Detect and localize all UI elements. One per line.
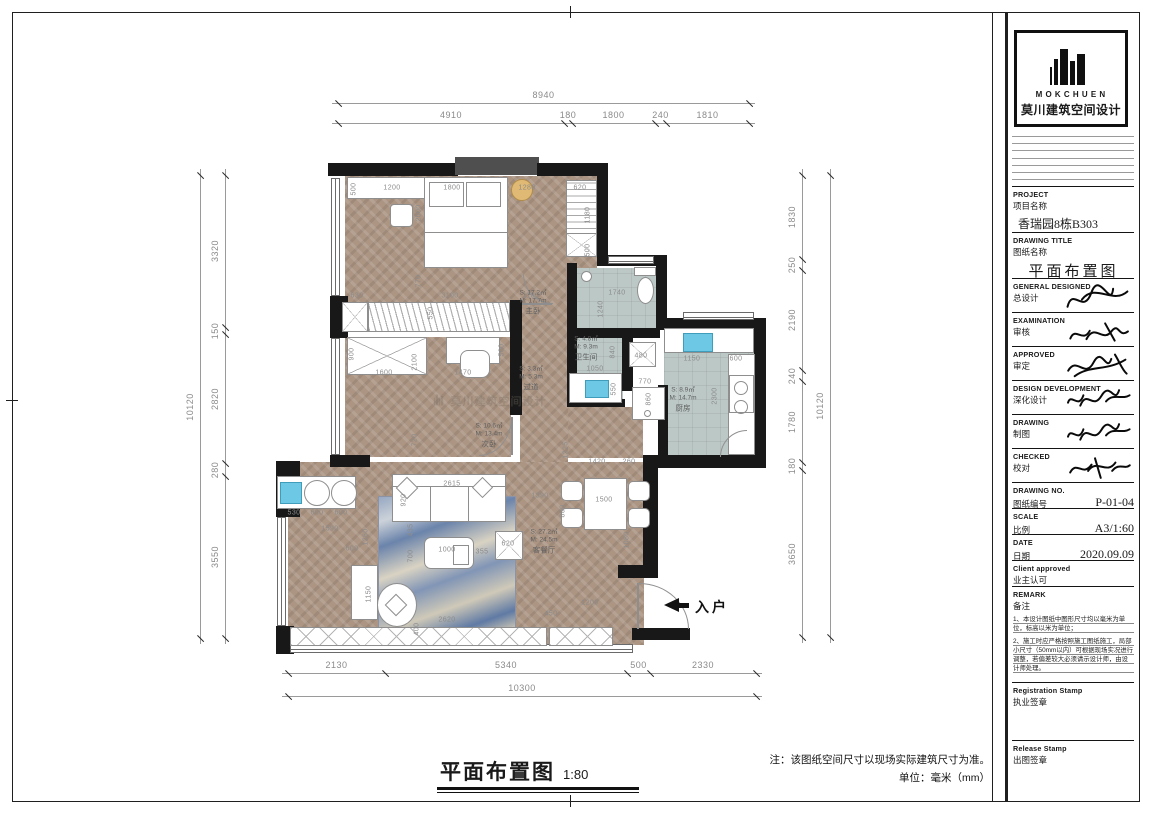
interior-dim-label: 720 xyxy=(412,434,419,447)
dim-label: 1830 xyxy=(787,206,797,228)
interior-dim-label: 620 xyxy=(574,185,587,192)
dim-line-right_segs xyxy=(802,169,803,643)
interior-dim-label: 630 xyxy=(351,293,364,300)
tb-label-en: DRAWING NO. xyxy=(1013,486,1134,495)
tb-section-release-stamp: Release Stamp出图签章 xyxy=(1012,740,1134,790)
interior-dim-label: 1150 xyxy=(366,586,373,603)
drawing-sheet: 8940491018018002401810213053405002330103… xyxy=(0,0,1150,813)
shower-head xyxy=(581,271,592,282)
interior-dim-label: 600 xyxy=(311,510,324,517)
interior-dim-label: 1050 xyxy=(586,366,603,373)
logo-decorative-lines xyxy=(1012,136,1134,180)
dim-line-left_segs xyxy=(225,169,226,644)
interior-dim-label: 1200 xyxy=(383,185,400,192)
interior-dim-label: 450 xyxy=(545,611,558,618)
tb-label-en: REMARK xyxy=(1013,590,1134,599)
dim-label: 180 xyxy=(560,110,577,120)
remark-note: 1、本设计图纸中图形尺寸均以毫米为单位，标高以米为单位； xyxy=(1013,615,1134,634)
tb-section-remark: REMARK备注1、本设计图纸中图形尺寸均以毫米为单位，标高以米为单位；2、施工… xyxy=(1012,586,1134,682)
tb-label-en: SCALE xyxy=(1013,512,1134,521)
dim-label: 8940 xyxy=(532,90,554,100)
dim-label: 1780 xyxy=(787,410,797,432)
wall xyxy=(328,163,458,176)
dim-line-top_segs xyxy=(332,123,755,124)
washing-machine xyxy=(304,480,330,506)
window-mullion xyxy=(291,649,632,650)
dim-label: 5340 xyxy=(495,660,517,670)
interior-dim-label: 550 xyxy=(611,383,618,396)
water-heater-knob xyxy=(644,410,651,417)
interior-dim-label: 600 xyxy=(346,546,359,553)
interior-dim-label: 860 xyxy=(646,393,653,406)
dim-label: 3320 xyxy=(210,240,220,262)
tb-section-examination: EXAMINATION审核 xyxy=(1012,312,1134,346)
interior-dim-label: 1200 xyxy=(581,600,598,607)
dim-line-left_total xyxy=(200,169,201,644)
interior-dim-label: 3100 xyxy=(441,293,458,300)
dim-label: 3650 xyxy=(787,542,797,564)
interior-dim-label: 1600 xyxy=(375,370,392,377)
burner xyxy=(734,381,748,395)
wall xyxy=(597,168,608,265)
sheet-note-line1: 注：该图纸空间尺寸以现场实际建筑尺寸为准。 xyxy=(640,752,990,770)
dim-label: 2130 xyxy=(325,660,347,670)
dim-label: 250 xyxy=(787,256,797,273)
interior-dim-label: 770 xyxy=(416,275,423,288)
logo-name-en: MOKCHUEN xyxy=(1036,90,1109,99)
dim-label: 240 xyxy=(652,110,669,120)
dining-chair xyxy=(561,481,583,501)
tb-label-en: PROJECT xyxy=(1013,190,1134,199)
interior-dim-label: 1000 xyxy=(438,547,455,554)
interior-dim-label: 435 xyxy=(408,524,415,537)
interior-dim-label: 1470 xyxy=(454,370,471,377)
dim-label: 2190 xyxy=(787,309,797,331)
panel-divider-thick xyxy=(1005,12,1008,801)
interior-dim-label: 2620 xyxy=(438,617,455,624)
title-underline-thin xyxy=(437,792,639,793)
desk-living xyxy=(351,565,378,620)
wall xyxy=(330,455,370,467)
tb-label-cn: 执业签章 xyxy=(1013,696,1134,708)
vanity-sink xyxy=(585,380,609,398)
dim-label: 280 xyxy=(210,461,220,478)
interior-dim-label: 355 xyxy=(476,549,489,556)
interior-dim-label: 920 xyxy=(401,494,408,507)
dim-label: 500 xyxy=(630,660,647,670)
interior-dim-label: 550 xyxy=(428,307,435,320)
interior-dim-label: 700 xyxy=(408,550,415,563)
interior-dim-label: 500 xyxy=(585,244,592,257)
dim-line-bottom_segs xyxy=(282,673,762,674)
dim-label: 10120 xyxy=(815,392,825,420)
tb-label-cn: 业主认可 xyxy=(1013,574,1134,586)
interior-dim-label: 2300 xyxy=(712,387,719,404)
wall xyxy=(632,628,690,640)
room-label-4: S: 4.8㎡M: 9.3m卫生间 xyxy=(574,336,597,363)
room-label-2: S: 10.6㎡M: 13.4m次卧 xyxy=(475,423,502,450)
interior-dim-label: 600 xyxy=(730,356,743,363)
tb-section-client-approved: Client approved业主认可 xyxy=(1012,560,1134,586)
sofa-seat-divider xyxy=(468,487,469,521)
room-label-1: S: 17.2㎡M: 17.7m主卧 xyxy=(519,290,546,317)
logo-building-icon xyxy=(1048,47,1094,87)
wall xyxy=(455,157,539,175)
interior-dim-label: 260 xyxy=(623,459,636,466)
interior-dim-label: 400 xyxy=(414,623,421,636)
dim-line-right_total xyxy=(830,169,831,643)
pillow xyxy=(466,182,501,207)
window xyxy=(277,517,286,626)
interior-dim-label: 1240 xyxy=(598,300,605,317)
door-leaf-second-bedroom xyxy=(511,417,513,455)
tb-section-approved: APPROVED审定 xyxy=(1012,346,1134,380)
tb-label-cn: 图纸名称 xyxy=(1013,246,1134,258)
window xyxy=(683,312,754,320)
interior-dim-label: 900 xyxy=(349,348,356,361)
interior-dim-label: 800 xyxy=(560,505,567,518)
interior-dim-label: 1420 xyxy=(588,459,605,466)
dim-label: 3550 xyxy=(210,546,220,568)
interior-dim-label: 530 xyxy=(288,510,301,517)
tb-section-registration-stamp: Registration Stamp执业签章 xyxy=(1012,682,1134,740)
burner xyxy=(734,400,748,414)
interior-dim-label: 840 xyxy=(610,346,617,359)
dining-chair xyxy=(628,508,650,528)
dim-label: 10120 xyxy=(185,393,195,421)
sofa-seat-divider xyxy=(430,487,431,521)
toilet-tank xyxy=(634,267,656,276)
dim-label: 2820 xyxy=(210,387,220,409)
dim-label: 10300 xyxy=(508,683,536,693)
tb-section-date: DATE日期2020.09.09 xyxy=(1012,534,1134,560)
tb-section-project: PROJECT项目名称香瑞园8栋B303 xyxy=(1012,186,1134,232)
sheet-note-line2: 单位：毫米（mm） xyxy=(640,770,990,788)
interior-dim-label: 1500 xyxy=(595,497,612,504)
bed-sheet-line xyxy=(424,232,508,233)
nightstand xyxy=(390,204,413,227)
title-block-sections: PROJECT项目名称香瑞园8栋B303DRAWING TITLE图纸名称平面布… xyxy=(1012,186,1134,790)
room-label-3: S: 3.3㎡M: 5.3m过道 xyxy=(519,366,542,393)
plan-title: 平面布置图1:80 xyxy=(440,756,588,786)
interior-dim-label: 600 xyxy=(335,510,348,517)
wall xyxy=(618,565,658,578)
dim-label: 150 xyxy=(210,322,220,339)
window-mullion xyxy=(335,339,336,454)
window xyxy=(331,178,340,296)
title-underline-thick xyxy=(437,787,639,790)
interior-dim-label: 1225 xyxy=(563,441,570,458)
tb-section-drawing-title: DRAWING TITLE图纸名称平面布置图 xyxy=(1012,232,1134,278)
entry-arrow xyxy=(664,598,679,612)
window-mullion xyxy=(281,518,282,625)
window-mullion xyxy=(335,179,336,295)
interior-dim-label: 1800 xyxy=(443,185,460,192)
interior-dim-label: 1150 xyxy=(684,356,701,363)
tb-section-drawing-no-: DRAWING NO.图纸编号P-01-04 xyxy=(1012,482,1134,508)
dim-label: 1810 xyxy=(696,110,718,120)
interior-dim-label: 2000 xyxy=(416,204,423,221)
watermark-icon xyxy=(432,392,446,408)
wardrobe-strip xyxy=(368,302,510,332)
interior-dim-label: 500 xyxy=(499,344,506,357)
panel-divider-thin xyxy=(992,12,993,801)
window xyxy=(608,256,654,264)
tb-section-general-designed: GENERAL DESIGNED总设计 xyxy=(1012,278,1134,312)
entry-arrow-tail xyxy=(679,603,689,608)
toilet-bowl xyxy=(637,277,654,304)
remark-note: 2、施工时应严格按照施工图纸施工，局部小尺寸（50mm以内）可根据现场实况进行调… xyxy=(1013,637,1134,674)
dim-line-bottom_total xyxy=(282,696,762,697)
window-mullion xyxy=(609,261,653,262)
column-box xyxy=(342,302,368,332)
kitchen-sink xyxy=(683,333,713,352)
interior-dim-label: 620 xyxy=(502,541,515,548)
interior-dim-label: 2615 xyxy=(443,481,460,488)
dim-label: 1800 xyxy=(602,110,624,120)
tb-label-cn: 出图签章 xyxy=(1013,754,1134,766)
interior-dim-label: 1180 xyxy=(585,207,592,224)
sheet-note: 注：该图纸空间尺寸以现场实际建筑尺寸为准。 单位：毫米（mm） xyxy=(640,752,990,788)
dining-table xyxy=(584,478,627,530)
washing-machine xyxy=(331,480,357,506)
interior-dim-label: 480 xyxy=(635,353,648,360)
room-label-5: S: 8.9㎡M: 14.7m厨房 xyxy=(669,387,696,414)
tb-label-cn: 备注 xyxy=(1013,600,1134,612)
interior-dim-label: 1740 xyxy=(608,290,625,297)
dim-label: 240 xyxy=(787,367,797,384)
interior-dim-label: 1260 xyxy=(363,528,370,545)
tb-label-en: DRAWING TITLE xyxy=(1013,236,1134,245)
interior-dim-label: 1390 xyxy=(531,493,548,500)
interior-dim-label: 2100 xyxy=(412,353,419,370)
room-label-6: S: 27.2㎡M: 24.5m客餐厅 xyxy=(530,529,557,556)
tb-value: 香瑞园8栋B303 xyxy=(1013,215,1134,232)
dim-line-top_total xyxy=(332,103,755,104)
tb-section-checked: CHECKED校对 xyxy=(1012,448,1134,482)
column-box xyxy=(566,233,597,257)
interior-dim-label: 1080 xyxy=(624,531,631,548)
floor-plan: 8940491018018002401810213053405002330103… xyxy=(0,0,992,813)
dim-label: 180 xyxy=(787,458,797,475)
tb-label-cn: 项目名称 xyxy=(1013,200,1134,212)
window xyxy=(331,338,340,455)
logo-name-cn: 莫川建筑空间设计 xyxy=(1021,101,1121,118)
laundry-sink xyxy=(280,482,302,504)
tb-label-en: DATE xyxy=(1013,538,1134,547)
plan-scale: 1:80 xyxy=(563,767,588,782)
tb-section-scale: SCALE比例A3/1:60 xyxy=(1012,508,1134,534)
dim-label: 2330 xyxy=(692,660,714,670)
plan-title-text: 平面布置图 xyxy=(440,761,555,784)
shoe-cabinet xyxy=(549,627,613,646)
tb-label-en: Client approved xyxy=(1013,564,1134,573)
watermark-text: 莫川建筑空间设计 xyxy=(450,396,546,408)
company-logo: MOKCHUEN 莫川建筑空间设计 xyxy=(1014,30,1128,127)
title-block: MOKCHUEN 莫川建筑空间设计 PROJECT项目名称香瑞园8栋B303DR… xyxy=(1012,30,1134,790)
tb-label-en: Registration Stamp xyxy=(1013,686,1134,695)
watermark: 莫川建筑空间设计 xyxy=(432,392,562,422)
entry-label: 入户 xyxy=(695,597,729,617)
interior-dim-label: 500 xyxy=(351,183,358,196)
tb-label-en: Release Stamp xyxy=(1013,744,1134,753)
tb-section-drawing: DRAWING制图 xyxy=(1012,414,1134,448)
interior-dim-label: 1590 xyxy=(321,526,338,533)
tb-section-design-development: DESIGN DEVELOPMENT深化设计 xyxy=(1012,380,1134,414)
dining-chair xyxy=(628,481,650,501)
dim-label: 4910 xyxy=(440,110,462,120)
interior-dim-label: 1280 xyxy=(518,185,535,192)
wall xyxy=(754,322,766,465)
interior-dim-label: 770 xyxy=(639,379,652,386)
window-mullion xyxy=(684,317,753,318)
